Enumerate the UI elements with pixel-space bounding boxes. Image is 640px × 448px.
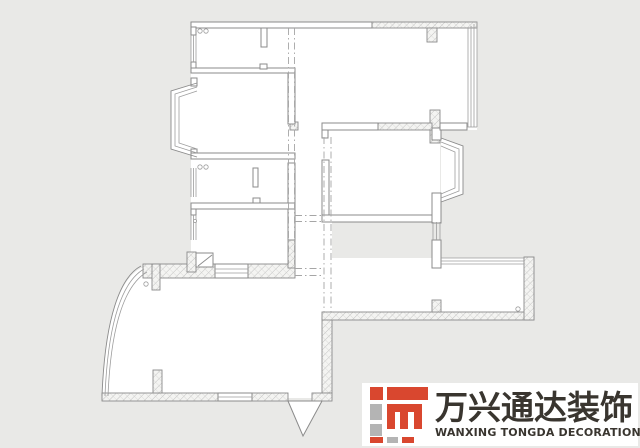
screenshot-root: 万兴通达装饰 WANXING TONGDA DECORATION: [0, 0, 640, 448]
divider-wall-1: [191, 68, 295, 73]
bedroom-right-top-wall: [322, 123, 378, 130]
threshold-step: [196, 253, 213, 267]
dining-bottom-stub: [432, 300, 441, 312]
logo-chinese-text: 万兴通达装饰: [435, 390, 640, 426]
top-room-divider-stub: [261, 28, 267, 47]
living-top-window-frame: [215, 264, 248, 278]
dining-right-wall: [524, 257, 534, 320]
bath-stub-wall: [253, 168, 258, 187]
room-interiors: [102, 22, 534, 398]
column-stub-top-right: [427, 28, 437, 42]
living-bottom-stub: [153, 370, 162, 393]
bedroom-right-top-wall-hatched: [378, 123, 432, 130]
living-bottom-wall-left: [102, 393, 218, 401]
floor-plan-drawing: [0, 0, 640, 448]
small-room-right-wall-lower: [288, 240, 295, 268]
entry-door-wedge: [288, 401, 322, 436]
dining-bottom-wall: [322, 312, 534, 320]
divider-wall-3: [191, 203, 295, 209]
top-wall-hatched: [372, 22, 477, 28]
divider-wall-2: [191, 153, 295, 159]
logo-mark-icon: [370, 387, 428, 443]
brand-watermark: 万兴通达装饰 WANXING TONGDA DECORATION: [362, 383, 638, 446]
window-mid-right: [433, 222, 440, 240]
bedroom-right-left-wall: [322, 160, 329, 218]
living-bottom-wall-right: [252, 393, 288, 401]
top-wall: [191, 22, 372, 28]
logo-english-text: WANXING TONGDA DECORATION: [435, 427, 640, 439]
living-top-stub: [152, 264, 160, 290]
living-bottom-corner: [312, 393, 332, 401]
bedroom-left-right-wall: [288, 73, 295, 124]
bedroom-right-bottom-wall: [322, 215, 432, 222]
small-room-left-wall-lower: [187, 252, 196, 272]
living-right-wall: [322, 318, 332, 393]
